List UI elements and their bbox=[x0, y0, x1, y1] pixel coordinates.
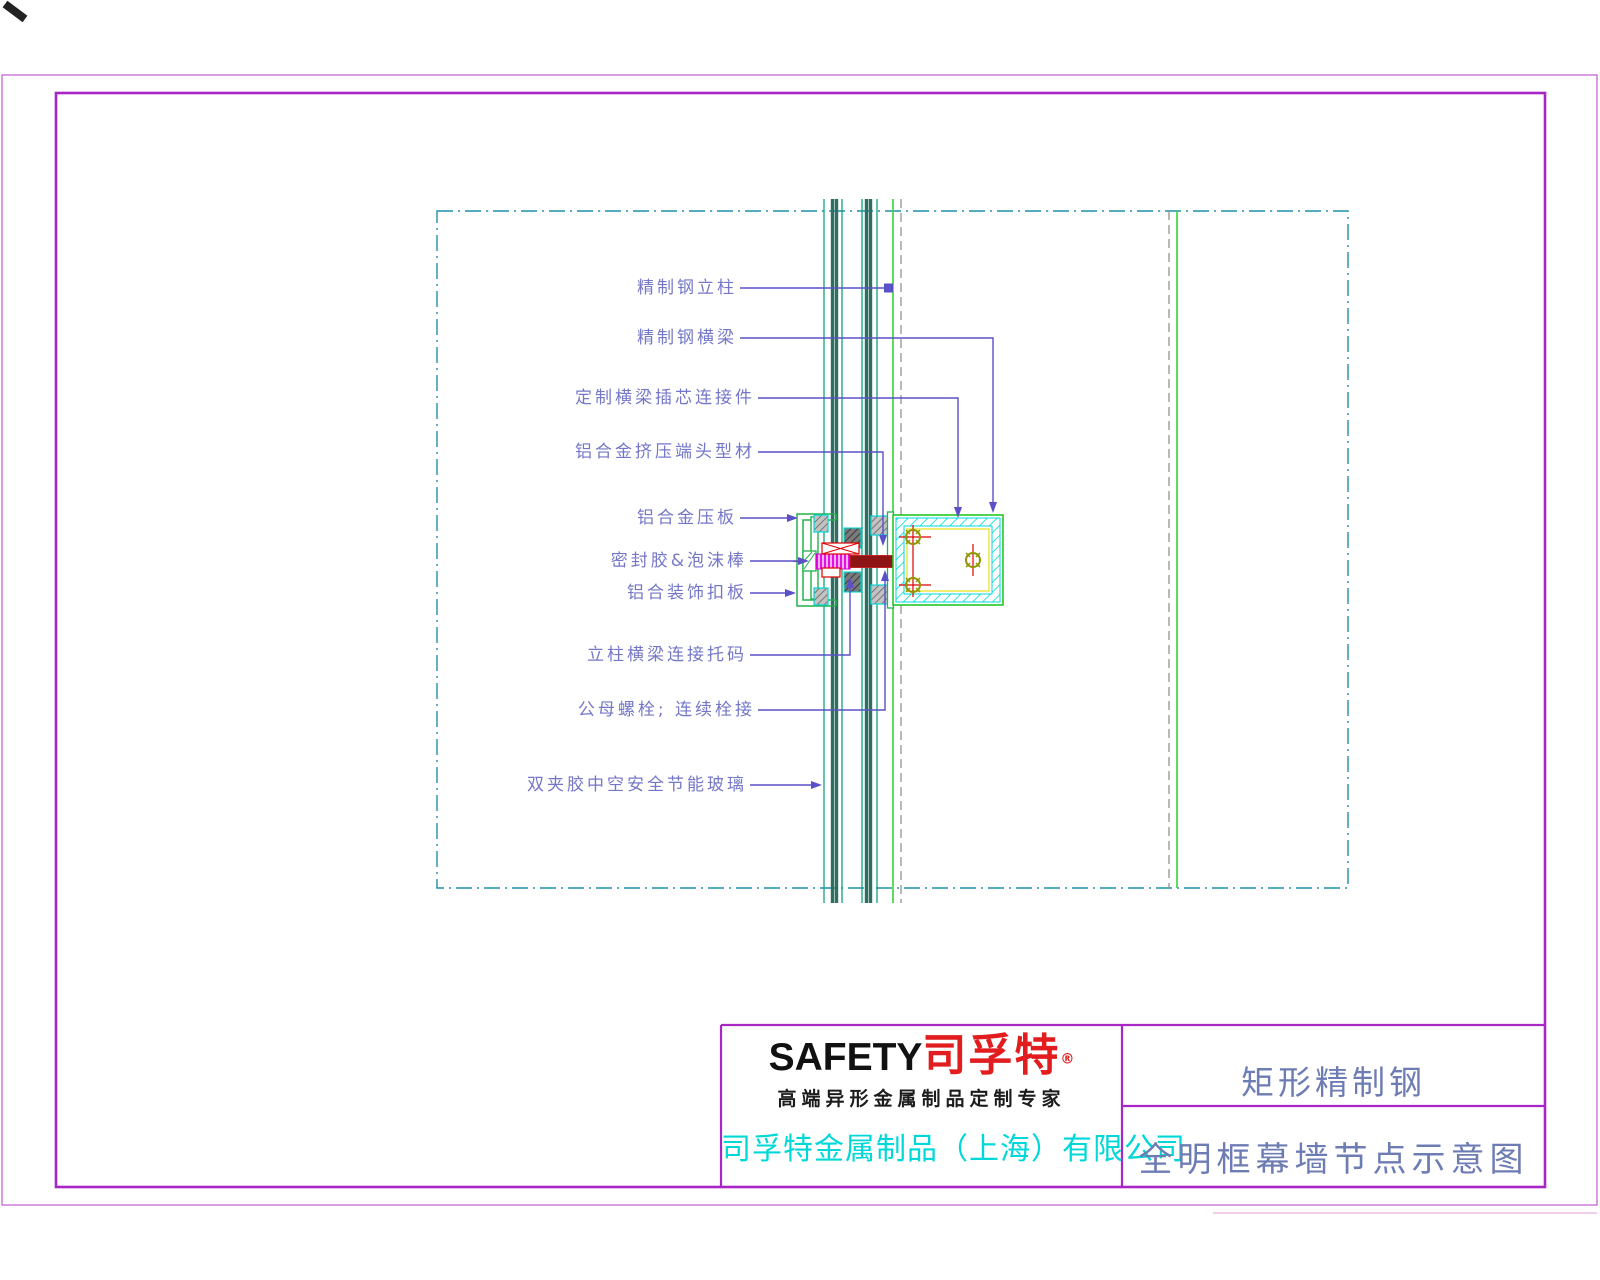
label-aluminum-end-profile: 铝合金挤压端头型材 bbox=[575, 441, 755, 463]
label-insulated-glass: 双夹胶中空安全节能玻璃 bbox=[527, 774, 747, 796]
logo-safety-text: SAFETY bbox=[769, 1036, 923, 1079]
drawing-title: 全明框幕墙节点示意图 bbox=[1122, 1132, 1545, 1181]
label-sealant-foam-rod: 密封胶&泡沫棒 bbox=[611, 550, 747, 572]
label-male-female-bolt: 公母螺栓; 连续栓接 bbox=[578, 699, 755, 721]
label-column-beam-bracket: 立柱横梁连接托码 bbox=[587, 644, 747, 666]
bolt-thread bbox=[816, 554, 850, 569]
gasket bbox=[814, 515, 828, 532]
node-assembly bbox=[793, 512, 1003, 608]
igu-spacer bbox=[844, 572, 861, 592]
logo-chinese-text: 司孚特 bbox=[922, 1031, 1060, 1080]
product-name: 矩形精制钢 bbox=[1122, 1056, 1545, 1104]
company-name: 司孚特金属制品（上海）有限公司 bbox=[721, 1124, 1122, 1168]
label-aluminum-pressure-plate: 铝合金压板 bbox=[637, 507, 737, 529]
corner-scan-mark bbox=[5, 4, 25, 19]
gasket bbox=[871, 516, 889, 535]
label-beam-insert-connector: 定制横梁插芯连接件 bbox=[575, 387, 755, 409]
gasket bbox=[871, 585, 889, 604]
sheet-border bbox=[56, 93, 1545, 1187]
logo-tagline: 高端异形金属制品定制专家 bbox=[721, 1084, 1122, 1111]
label-decorative-cover-plate: 铝合装饰扣板 bbox=[627, 582, 747, 604]
label-steel-beam: 精制钢横梁 bbox=[637, 327, 737, 349]
registered-mark: ® bbox=[1060, 1052, 1074, 1068]
cad-sheet: 精制钢立柱 精制钢横梁 定制横梁插芯连接件 铝合金挤压端头型材 铝合金压板 密封… bbox=[0, 0, 1600, 1280]
label-steel-column: 精制钢立柱 bbox=[637, 277, 737, 299]
bolt-rod bbox=[850, 556, 894, 568]
gasket bbox=[814, 588, 828, 605]
company-logo: SAFETY司孚特® bbox=[721, 1030, 1122, 1082]
